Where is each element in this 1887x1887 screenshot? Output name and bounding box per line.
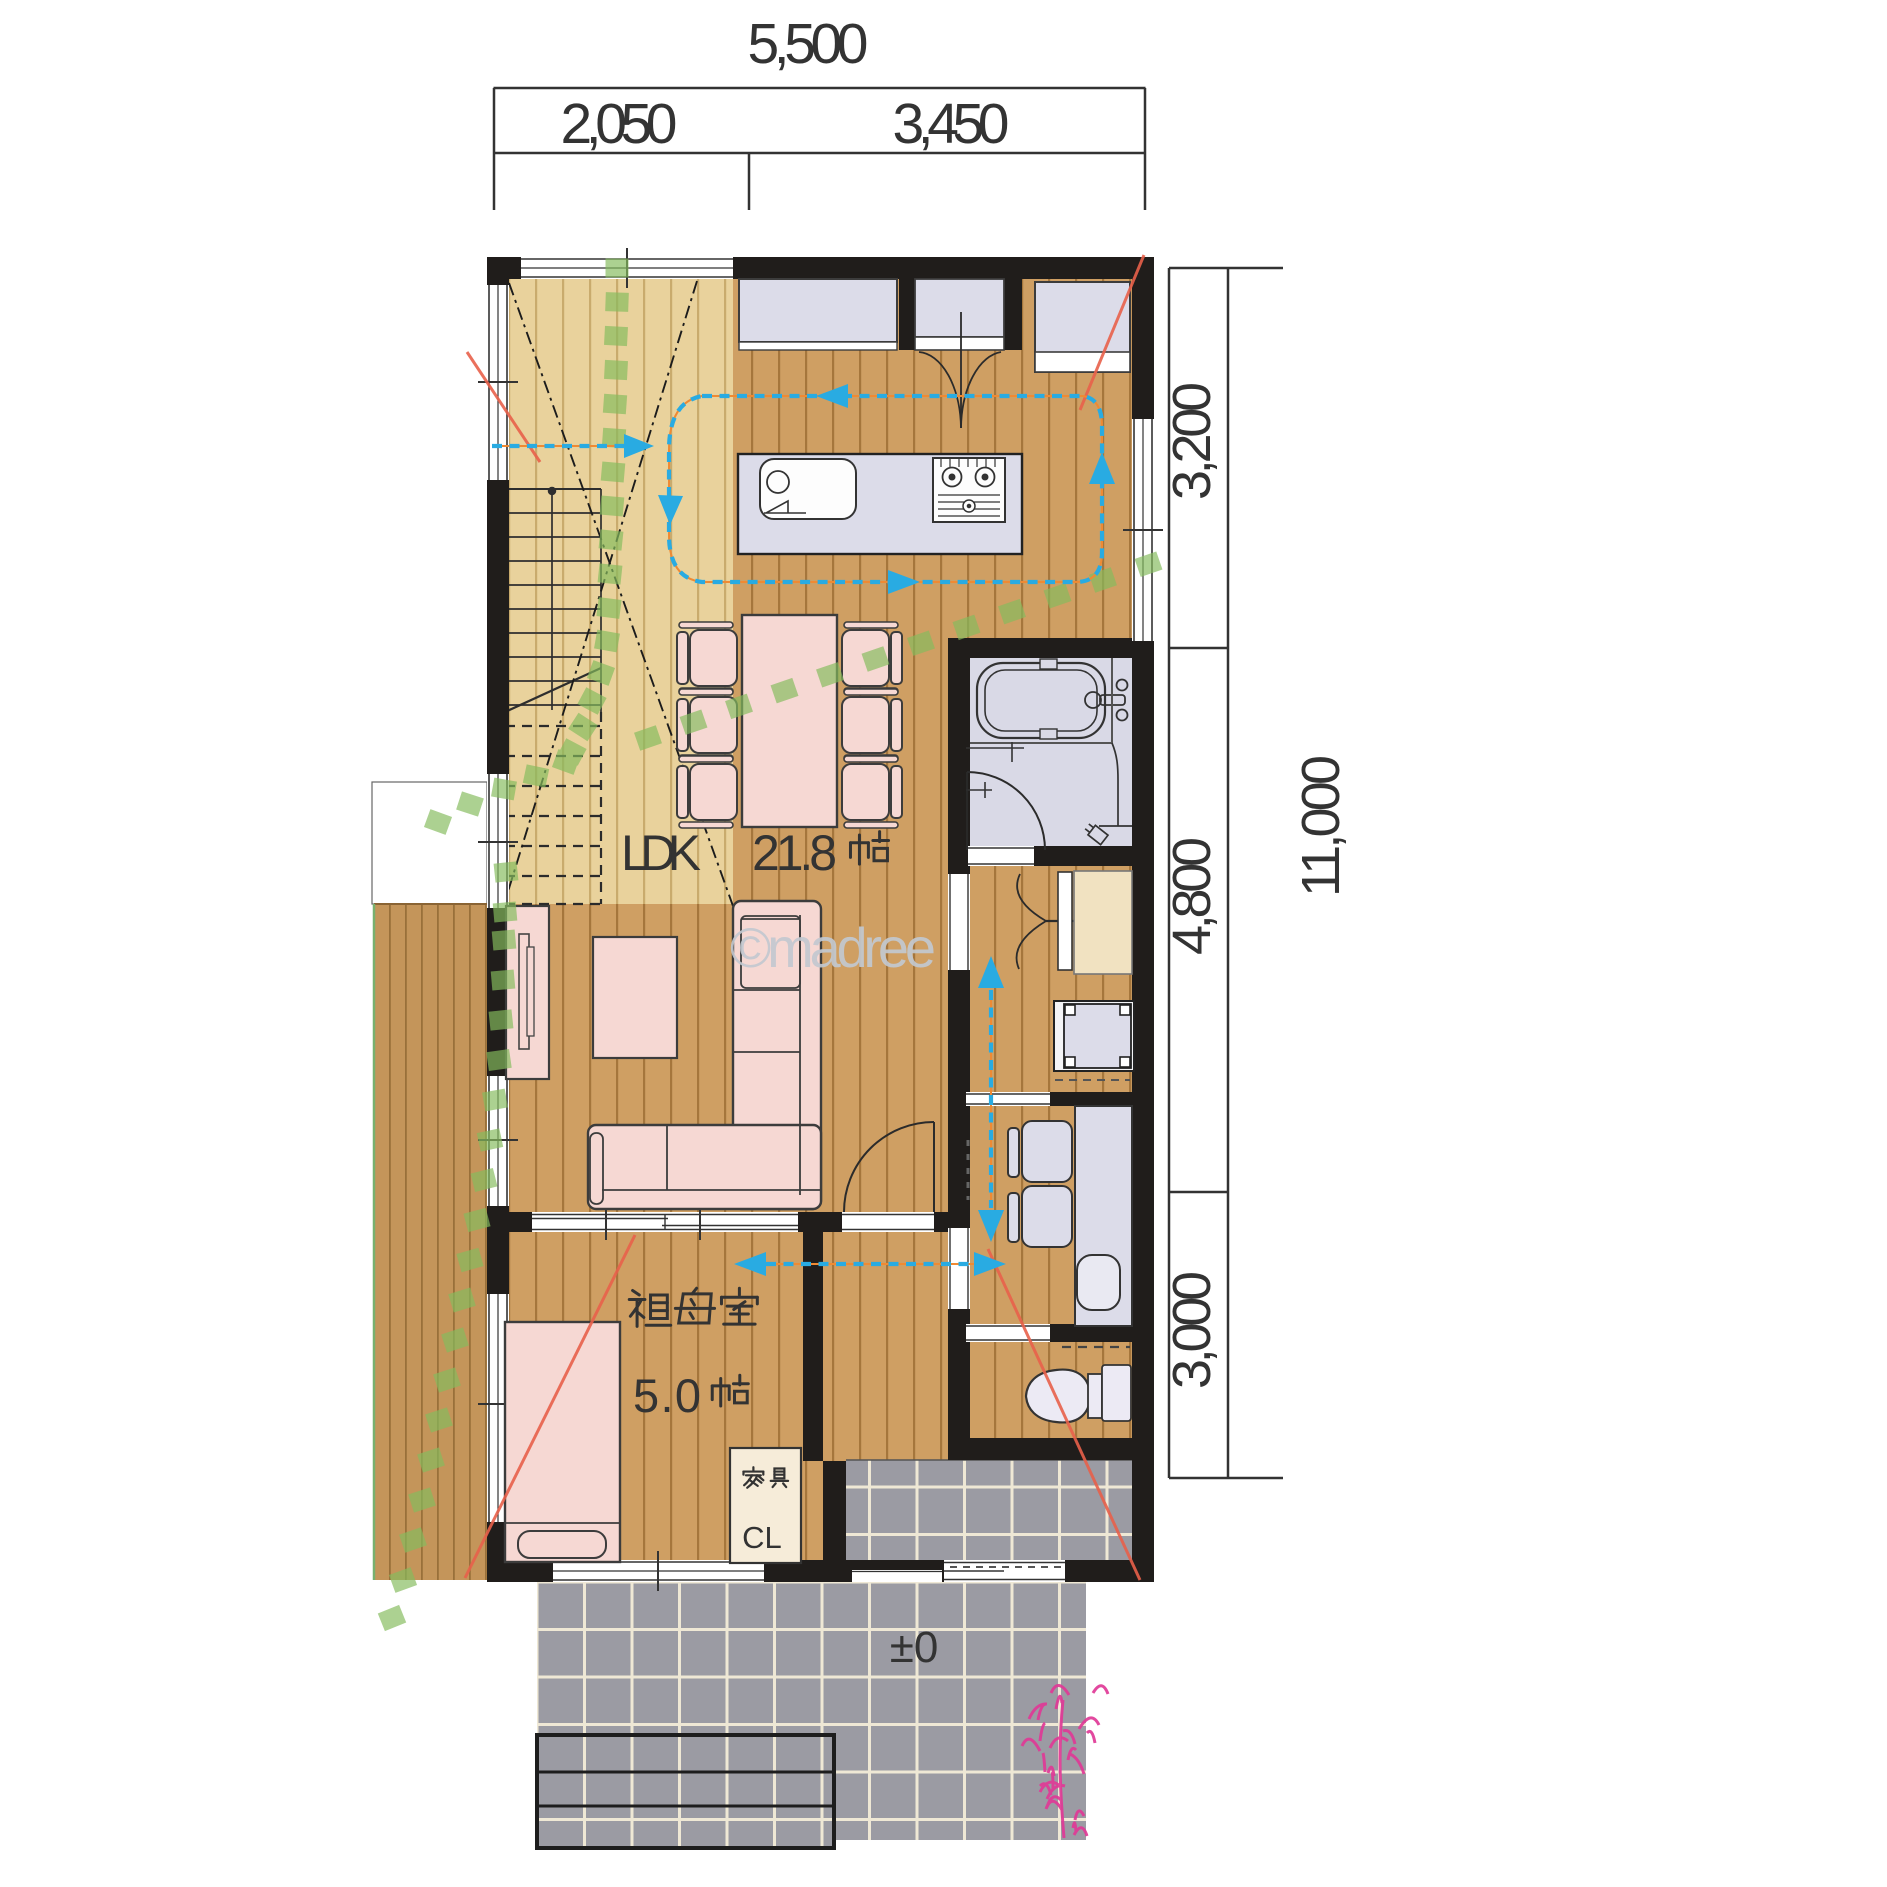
svg-text:11,000: 11,000 <box>1291 755 1351 897</box>
svg-text:±0: ±0 <box>890 1623 939 1672</box>
svg-text:3,200: 3,200 <box>1162 382 1222 500</box>
svg-text:4,800: 4,800 <box>1162 837 1222 955</box>
svg-text:21.8: 21.8 <box>752 825 837 881</box>
svg-text:CL: CL <box>742 1520 782 1555</box>
svg-text:©madree: ©madree <box>730 916 936 979</box>
svg-text:LDK: LDK <box>621 825 701 881</box>
svg-text:5,500: 5,500 <box>748 12 869 76</box>
svg-text:3,000: 3,000 <box>1162 1271 1222 1389</box>
svg-text:2,050: 2,050 <box>561 92 678 156</box>
svg-text:3,450: 3,450 <box>893 92 1010 156</box>
svg-text:5.0: 5.0 <box>633 1369 701 1422</box>
